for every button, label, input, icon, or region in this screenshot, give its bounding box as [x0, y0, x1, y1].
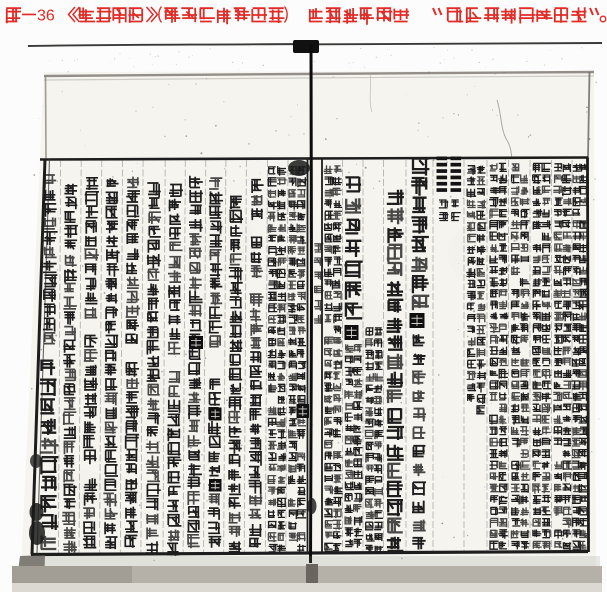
svg-text:36: 36: [37, 8, 55, 25]
